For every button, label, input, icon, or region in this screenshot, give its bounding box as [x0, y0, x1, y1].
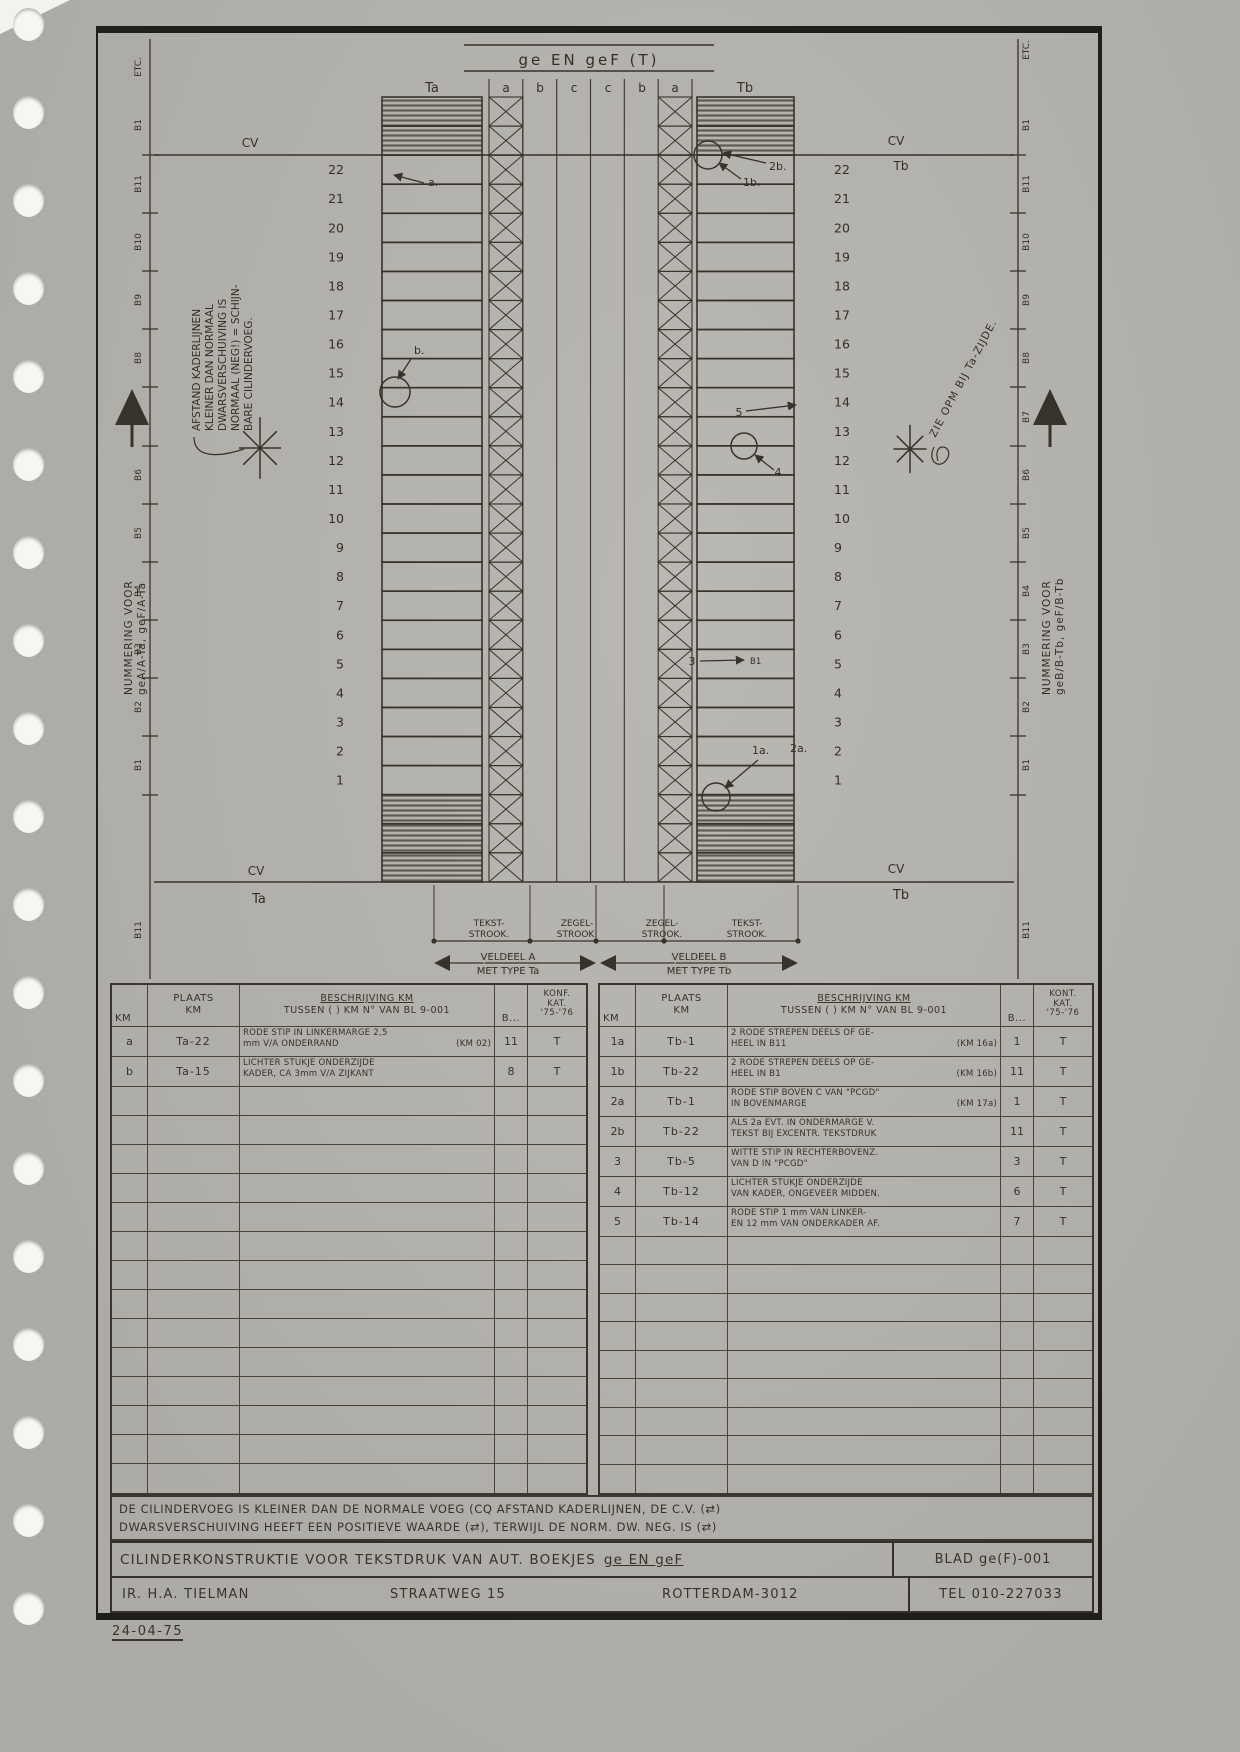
callout-5: 5: [736, 406, 743, 419]
col-header-besch-line1: BESCHRIJVING KM: [817, 993, 910, 1005]
ruler-label-right: B6: [1022, 469, 1032, 481]
empty-row: [112, 1319, 586, 1348]
punch-hole: [13, 1416, 44, 1449]
callout-a: a.: [428, 176, 438, 189]
empty-cell: [240, 1203, 495, 1232]
row-number-left: 12: [328, 453, 344, 468]
empty-cell: [240, 1232, 495, 1261]
stamp-frame-ta: [382, 562, 482, 591]
empty-cell: [148, 1348, 240, 1377]
empty-cell: [528, 1377, 586, 1406]
ruler-label-right: ETC.: [1022, 40, 1032, 60]
empty-cell: [728, 1322, 1001, 1350]
cv-label: CV: [248, 864, 265, 878]
besch-line1: RODE STIP BOVEN C VAN "PCGD": [731, 1088, 997, 1099]
empty-cell: [1034, 1379, 1092, 1407]
stamp-frame-ta: [382, 766, 482, 795]
ruler-label-right: B3: [1022, 643, 1032, 655]
empty-cell: [112, 1261, 148, 1290]
kaderlijnen-note: AFSTAND KADERLIJNENKLEINER DAN NORMAALDW…: [191, 284, 255, 431]
empty-cell: [240, 1145, 495, 1174]
empty-row: [112, 1203, 586, 1232]
column-header: c: [605, 81, 612, 95]
row-number-right: 22: [834, 162, 850, 177]
empty-row: [600, 1265, 1092, 1293]
besch-line2: KADER, CA 3mm V/A ZIJKANT: [243, 1069, 491, 1080]
empty-cell: [728, 1351, 1001, 1379]
stamp-frame-ta: [382, 649, 482, 678]
ruler-label-right: B11: [1022, 175, 1032, 193]
column-header: a: [502, 81, 509, 95]
empty-row: [112, 1377, 586, 1406]
kaderlijnen-note-line: KLEINER DAN NORMAAL: [204, 304, 216, 431]
km-ref: (KM 16b): [957, 1069, 997, 1080]
drawing-title-text: CILINDERKONSTRUKTIE VOOR TEKSTDRUK VAN A…: [120, 1552, 596, 1568]
stamp-frame-tb: [697, 271, 794, 300]
besch-line1: RODE STIP IN LINKERMARGE 2,5: [243, 1028, 491, 1039]
empty-row: [600, 1237, 1092, 1265]
empty-cell: [636, 1322, 728, 1350]
km-table-tb: KMPLAATS KMBESCHRIJVING KMTUSSEN ( ) KM …: [598, 983, 1094, 1495]
row-number-left: 21: [328, 191, 344, 206]
empty-row: [112, 1116, 586, 1145]
callout-3: 3: [689, 655, 696, 668]
empty-cell: [148, 1406, 240, 1435]
kaderlijnen-note-line: NORMAAL (NEG!) = SCHIJN-: [230, 284, 242, 431]
empty-cell: [495, 1232, 528, 1261]
empty-cell: [728, 1379, 1001, 1407]
ruler-label-left: B5: [134, 527, 144, 539]
col-header-beschrijving: BESCHRIJVING KMTUSSEN ( ) KM N° VAN BL 9…: [240, 985, 495, 1027]
empty-row: [600, 1379, 1092, 1407]
besch-line2: EN 12 mm VAN ONDERKADER AF.: [731, 1219, 997, 1230]
numbering-line: NUMMERING VOOR: [1041, 580, 1053, 695]
empty-cell: [495, 1377, 528, 1406]
empty-cell: [528, 1290, 586, 1319]
city: ROTTERDAM-3012: [652, 1587, 908, 1602]
empty-cell: [240, 1348, 495, 1377]
empty-cell: [1001, 1237, 1034, 1265]
row-number-left: 22: [328, 162, 344, 177]
row-number-left: 2: [336, 744, 344, 759]
besch-line2-text: IN BOVENMARGE: [731, 1099, 807, 1109]
km-row: 1aTb-12 RODE STREPEN DEELS OF GE-(KM 16a…: [600, 1027, 1092, 1057]
empty-cell: [148, 1464, 240, 1493]
cell-b: 1: [1001, 1027, 1034, 1057]
note-line-1: DE CILINDERVOEG IS KLEINER DAN DE NORMAL…: [119, 1500, 1085, 1518]
cell-kat: T: [1034, 1087, 1092, 1117]
note-leader: [194, 437, 244, 455]
footer-note: DE CILINDERVOEG IS KLEINER DAN DE NORMAL…: [110, 1495, 1094, 1541]
row-number-left: 9: [336, 540, 344, 555]
empty-cell: [728, 1294, 1001, 1322]
empty-cell: [528, 1087, 586, 1116]
empty-cell: [112, 1435, 148, 1464]
besch-line2-text: mm V/A ONDERRAND: [243, 1039, 339, 1049]
callout-arrow: [725, 760, 758, 788]
row-number-left: 3: [336, 715, 344, 730]
empty-cell: [148, 1435, 240, 1464]
stamp-frame-ta: [382, 824, 482, 853]
empty-cell: [600, 1379, 636, 1407]
empty-cell: [240, 1174, 495, 1203]
empty-cell: [495, 1406, 528, 1435]
empty-row: [600, 1436, 1092, 1464]
cell-plaats: Tb-5: [636, 1147, 728, 1177]
stamp-frame-tb: [697, 504, 794, 533]
ruler-label-left: B11: [134, 921, 144, 939]
row-number-left: 6: [336, 627, 344, 642]
col-header-beschrijving: BESCHRIJVING KMTUSSEN ( ) KM N° VAN BL 9…: [728, 985, 1001, 1027]
column-header: b: [536, 81, 544, 95]
empty-cell: [528, 1319, 586, 1348]
column-header: b: [638, 81, 646, 95]
empty-cell: [240, 1290, 495, 1319]
empty-cell: [240, 1261, 495, 1290]
row-number-left: 17: [328, 308, 344, 323]
ruler-label-right: B4: [1022, 585, 1032, 597]
empty-cell: [600, 1237, 636, 1265]
empty-cell: [148, 1087, 240, 1116]
col-header-besch-line2: TUSSEN ( ) KM N° VAN BL 9-001: [284, 1005, 450, 1017]
km-row: 2bTb-22ALS 2a EVT. IN ONDERMARGE V.TEKST…: [600, 1117, 1092, 1147]
cv-label: CV: [242, 136, 259, 150]
row-number-right: 19: [834, 249, 850, 264]
cell-b: 11: [1001, 1057, 1034, 1087]
row-number-left: 11: [328, 482, 344, 497]
empty-cell: [636, 1351, 728, 1379]
ruler-label-left: B9: [134, 294, 144, 306]
cell-beschrijving: WITTE STIP IN RECHTERBOVENZ.VAN D IN "PC…: [728, 1147, 1001, 1177]
row-number-right: 7: [834, 598, 842, 613]
empty-cell: [112, 1116, 148, 1145]
callout-2b: 2b.: [769, 160, 786, 173]
veldeel-b-label: VELDEEL B: [672, 952, 727, 963]
empty-cell: [495, 1435, 528, 1464]
besch-line2-text: HEEL IN B11: [731, 1039, 787, 1049]
ruler-label-right: B8: [1022, 352, 1032, 364]
stamp-frame-tb: [697, 562, 794, 591]
cell-beschrijving: 2 RODE STREPEN DEELS OP GE-(KM 16b)HEEL …: [728, 1057, 1001, 1087]
cell-beschrijving: RODE STIP BOVEN C VAN "PCGD"(KM 17a)IN B…: [728, 1087, 1001, 1117]
cell-b: 8: [495, 1057, 528, 1087]
row-number-right: 6: [834, 627, 842, 642]
stamp-frame-ta: [382, 242, 482, 271]
strook-label: STROOK.: [727, 930, 767, 940]
cell-b: 7: [1001, 1207, 1034, 1237]
empty-cell: [636, 1379, 728, 1407]
stamp-frame-tb: [697, 242, 794, 271]
empty-cell: [600, 1465, 636, 1493]
row-number-right: 21: [834, 191, 850, 206]
cell-km: 4: [600, 1177, 636, 1207]
besch-line2-text: VAN D IN "PCGD": [731, 1159, 808, 1169]
strook-label: ZEGEL-: [561, 919, 594, 929]
cell-km: 1b: [600, 1057, 636, 1087]
dim-arrow-left: [600, 955, 616, 971]
km-row: 5Tb-14RODE STIP 1 mm VAN LINKER-EN 12 mm…: [600, 1207, 1092, 1237]
cv-label: CV: [888, 134, 905, 148]
kaderlijnen-note-line: BARE CILINDERVOEG.: [243, 317, 255, 431]
stamp-frame-ta: [382, 446, 482, 475]
stamp-frame-ta: [382, 707, 482, 736]
empty-cell: [1034, 1465, 1092, 1493]
empty-cell: [528, 1174, 586, 1203]
ruler-label-left: B8: [134, 352, 144, 364]
stamp-frame-ta: [382, 126, 482, 155]
column-header: a: [671, 81, 678, 95]
empty-row: [112, 1145, 586, 1174]
cell-b: 1: [1001, 1087, 1034, 1117]
zie-opm-note: ZIE OPM BIJ Ta-ZIJDE.: [927, 318, 999, 440]
empty-cell: [528, 1145, 586, 1174]
empty-cell: [728, 1408, 1001, 1436]
empty-cell: [495, 1319, 528, 1348]
ta-label: Ta: [251, 892, 266, 907]
ruler-label-right: B9: [1022, 294, 1032, 306]
row-number-right: 3: [834, 715, 842, 730]
empty-cell: [112, 1145, 148, 1174]
stamp-frame-ta: [382, 271, 482, 300]
empty-cell: [240, 1406, 495, 1435]
besch-line1: 2 RODE STREPEN DEELS OP GE-: [731, 1058, 997, 1069]
empty-row: [112, 1087, 586, 1116]
empty-row: [600, 1408, 1092, 1436]
empty-cell: [148, 1203, 240, 1232]
punch-hole: [13, 360, 44, 393]
strook-label: STROOK.: [642, 930, 682, 940]
row-number-left: 8: [336, 569, 344, 584]
km-row: 1bTb-222 RODE STREPEN DEELS OP GE-(KM 16…: [600, 1057, 1092, 1087]
stamp-frame-tb: [697, 330, 794, 359]
empty-cell: [1001, 1465, 1034, 1493]
cell-plaats: Ta-15: [148, 1057, 240, 1087]
empty-cell: [1034, 1322, 1092, 1350]
cell-plaats: Tb-1: [636, 1087, 728, 1117]
empty-cell: [1001, 1436, 1034, 1464]
note-line-2: DWARSVERSCHUIVING HEEFT EEN POSITIEVE WA…: [119, 1518, 1085, 1536]
stamp-frame-ta: [382, 737, 482, 766]
row-number-right: 16: [834, 337, 850, 352]
cell-km: 3: [600, 1147, 636, 1177]
col-header-km: KM: [600, 985, 636, 1027]
km-row: 4Tb-12LICHTER STUKJE ONDERZIJDEVAN KADER…: [600, 1177, 1092, 1207]
stamp-frame-tb: [697, 213, 794, 242]
cell-km: 5: [600, 1207, 636, 1237]
cell-plaats: Tb-1: [636, 1027, 728, 1057]
empty-row: [112, 1348, 586, 1377]
ruler-label-right: B1: [1022, 759, 1032, 771]
stamp-frame-ta: [382, 330, 482, 359]
km-ref: (KM 16a): [957, 1039, 997, 1050]
ruler-label-left: B2: [134, 701, 144, 713]
cell-beschrijving: ALS 2a EVT. IN ONDERMARGE V.TEKST BIJ EX…: [728, 1117, 1001, 1147]
callout-3-target: B1: [750, 657, 761, 667]
punch-hole: [13, 272, 44, 305]
numbering-line: NUMMERING VOOR: [123, 580, 135, 695]
empty-cell: [1034, 1265, 1092, 1293]
empty-cell: [728, 1436, 1001, 1464]
empty-cell: [240, 1435, 495, 1464]
empty-cell: [112, 1203, 148, 1232]
stamp-frame-tb: [697, 417, 794, 446]
besch-line2: (KM 16a)HEEL IN B11: [731, 1039, 997, 1050]
besch-line1: LICHTER STUKJE ONDERZIJDE: [243, 1058, 491, 1069]
empty-cell: [728, 1265, 1001, 1293]
empty-cell: [148, 1290, 240, 1319]
stamp-frame-tb: [697, 707, 794, 736]
ruler-label-left: B1: [134, 759, 144, 771]
row-number-right: 2: [834, 744, 842, 759]
punch-hole: [13, 184, 44, 217]
empty-cell: [528, 1348, 586, 1377]
empty-cell: [1034, 1351, 1092, 1379]
km-ref: (KM 17a): [957, 1099, 997, 1110]
besch-line1: LICHTER STUKJE ONDERZIJDE: [731, 1178, 997, 1189]
cell-beschrijving: RODE STIP IN LINKERMARGE 2,5(KM 02)mm V/…: [240, 1027, 495, 1057]
contact-bar: IR. H.A. TIELMAN STRAATWEG 15 ROTTERDAM-…: [110, 1578, 1094, 1613]
empty-row: [112, 1174, 586, 1203]
cell-plaats: Ta-22: [148, 1027, 240, 1057]
besch-line2: VAN D IN "PCGD": [731, 1159, 997, 1170]
zie-opm-text: ZIE OPM BIJ Ta-ZIJDE.: [927, 318, 999, 440]
ruler-label-right: B1: [1022, 119, 1032, 131]
row-number-left: 18: [328, 278, 344, 293]
tb-label: Tb: [893, 159, 909, 173]
punch-hole: [13, 800, 44, 833]
col-header-besch-line1: BESCHRIJVING KM: [320, 993, 413, 1005]
phone-number: TEL 010-227033: [908, 1578, 1092, 1611]
cell-kat: T: [1034, 1177, 1092, 1207]
cell-kat: T: [528, 1027, 586, 1057]
cell-km: 1a: [600, 1027, 636, 1057]
veldeel-a-label: VELDEEL A: [481, 952, 536, 963]
empty-cell: [112, 1174, 148, 1203]
numbering-arrow-left: [115, 389, 149, 425]
empty-row: [112, 1435, 586, 1464]
empty-row: [112, 1464, 586, 1493]
besch-line2: (KM 16b)HEEL IN B1: [731, 1069, 997, 1080]
cell-plaats: Tb-12: [636, 1177, 728, 1207]
empty-cell: [1001, 1294, 1034, 1322]
empty-cell: [495, 1290, 528, 1319]
numbering-arrow-right: [1033, 389, 1067, 425]
punch-hole: [13, 624, 44, 657]
stamp-frame-ta: [382, 417, 482, 446]
besch-line2: (KM 17a)IN BOVENMARGE: [731, 1099, 997, 1110]
empty-cell: [528, 1203, 586, 1232]
stamp-frame-tb: [697, 649, 794, 678]
row-number-right: 10: [834, 511, 850, 526]
empty-cell: [495, 1464, 528, 1493]
punch-hole: [13, 536, 44, 569]
empty-cell: [495, 1261, 528, 1290]
stamp-frame-tb: [697, 359, 794, 388]
drawing-sheet: ge EN geF (T)TaabccbaTbETC.B1B11B10B9B8B…: [96, 26, 1102, 1620]
column-header: Tb: [736, 81, 753, 96]
km-ref: (KM 02): [456, 1039, 491, 1050]
numbering-line: geA/A-Ta, geF/A-Ta: [136, 582, 148, 695]
row-number-right: 12: [834, 453, 850, 468]
punch-hole: [13, 712, 44, 745]
author-name: IR. H.A. TIELMAN: [112, 1587, 380, 1602]
cell-km: 2b: [600, 1117, 636, 1147]
empty-row: [600, 1322, 1092, 1350]
km-row: bTa-15LICHTER STUKJE ONDERZIJDEKADER, CA…: [112, 1057, 586, 1087]
cell-beschrijving: LICHTER STUKJE ONDERZIJDEVAN KADER, ONGE…: [728, 1177, 1001, 1207]
cell-kat: T: [1034, 1147, 1092, 1177]
empty-row: [600, 1351, 1092, 1379]
row-number-right: 14: [834, 395, 850, 410]
empty-cell: [636, 1265, 728, 1293]
empty-cell: [1001, 1265, 1034, 1293]
empty-row: [112, 1406, 586, 1435]
punch-hole: [13, 8, 44, 41]
table-header-row: KMPLAATS KMBESCHRIJVING KMTUSSEN ( ) KM …: [600, 985, 1092, 1027]
ruler-label-right: B7: [1022, 411, 1032, 423]
callout-arrow: [398, 359, 411, 379]
stamp-frame-tb: [697, 533, 794, 562]
cell-plaats: Tb-22: [636, 1117, 728, 1147]
empty-cell: [148, 1232, 240, 1261]
empty-cell: [600, 1436, 636, 1464]
stamp-frame-ta: [382, 359, 482, 388]
col-header-plaats: PLAATS KM: [148, 985, 240, 1027]
empty-cell: [240, 1319, 495, 1348]
punch-hole: [13, 888, 44, 921]
cell-b: 11: [1001, 1117, 1034, 1147]
empty-cell: [148, 1145, 240, 1174]
row-number-left: 16: [328, 337, 344, 352]
punch-hole: [13, 976, 44, 1009]
stamp-frame-tb: [697, 853, 794, 882]
stamp-frame-ta: [382, 504, 482, 533]
strook-label: ZEGEL-: [646, 919, 679, 929]
numbering-note-right: NUMMERING VOORgeB/B-Tb, geF/B-Tb: [1041, 578, 1066, 695]
kaderlijnen-note-line: AFSTAND KADERLIJNEN: [191, 309, 203, 431]
column-header: c: [571, 81, 578, 95]
empty-cell: [600, 1351, 636, 1379]
cell-plaats: Tb-14: [636, 1207, 728, 1237]
callout-4: 4: [775, 466, 782, 479]
empty-cell: [112, 1348, 148, 1377]
cylinder-diagram: ge EN geF (T)TaabccbaTbETC.B1B11B10B9B8B…: [98, 33, 1098, 983]
ruler-label-left: B1: [134, 119, 144, 131]
cell-b: 6: [1001, 1177, 1034, 1207]
empty-cell: [112, 1290, 148, 1319]
empty-cell: [528, 1116, 586, 1145]
stamp-frame-tb: [697, 795, 794, 824]
empty-cell: [1034, 1408, 1092, 1436]
besch-line2-text: HEEL IN B1: [731, 1069, 781, 1079]
stamp-frame-tb: [697, 737, 794, 766]
row-number-right: 11: [834, 482, 850, 497]
stamp-frame-tb: [697, 620, 794, 649]
empty-cell: [495, 1174, 528, 1203]
empty-cell: [600, 1322, 636, 1350]
strook-label: TEKST-: [473, 919, 505, 929]
cell-kat: T: [1034, 1027, 1092, 1057]
empty-cell: [636, 1436, 728, 1464]
stamp-frame-tb: [697, 824, 794, 853]
empty-cell: [1001, 1322, 1034, 1350]
empty-cell: [112, 1319, 148, 1348]
empty-cell: [240, 1464, 495, 1493]
empty-cell: [1001, 1351, 1034, 1379]
ruler-label-right: B10: [1022, 233, 1032, 251]
punch-hole: [13, 448, 44, 481]
drawing-title-type: ge EN geF: [604, 1552, 684, 1568]
